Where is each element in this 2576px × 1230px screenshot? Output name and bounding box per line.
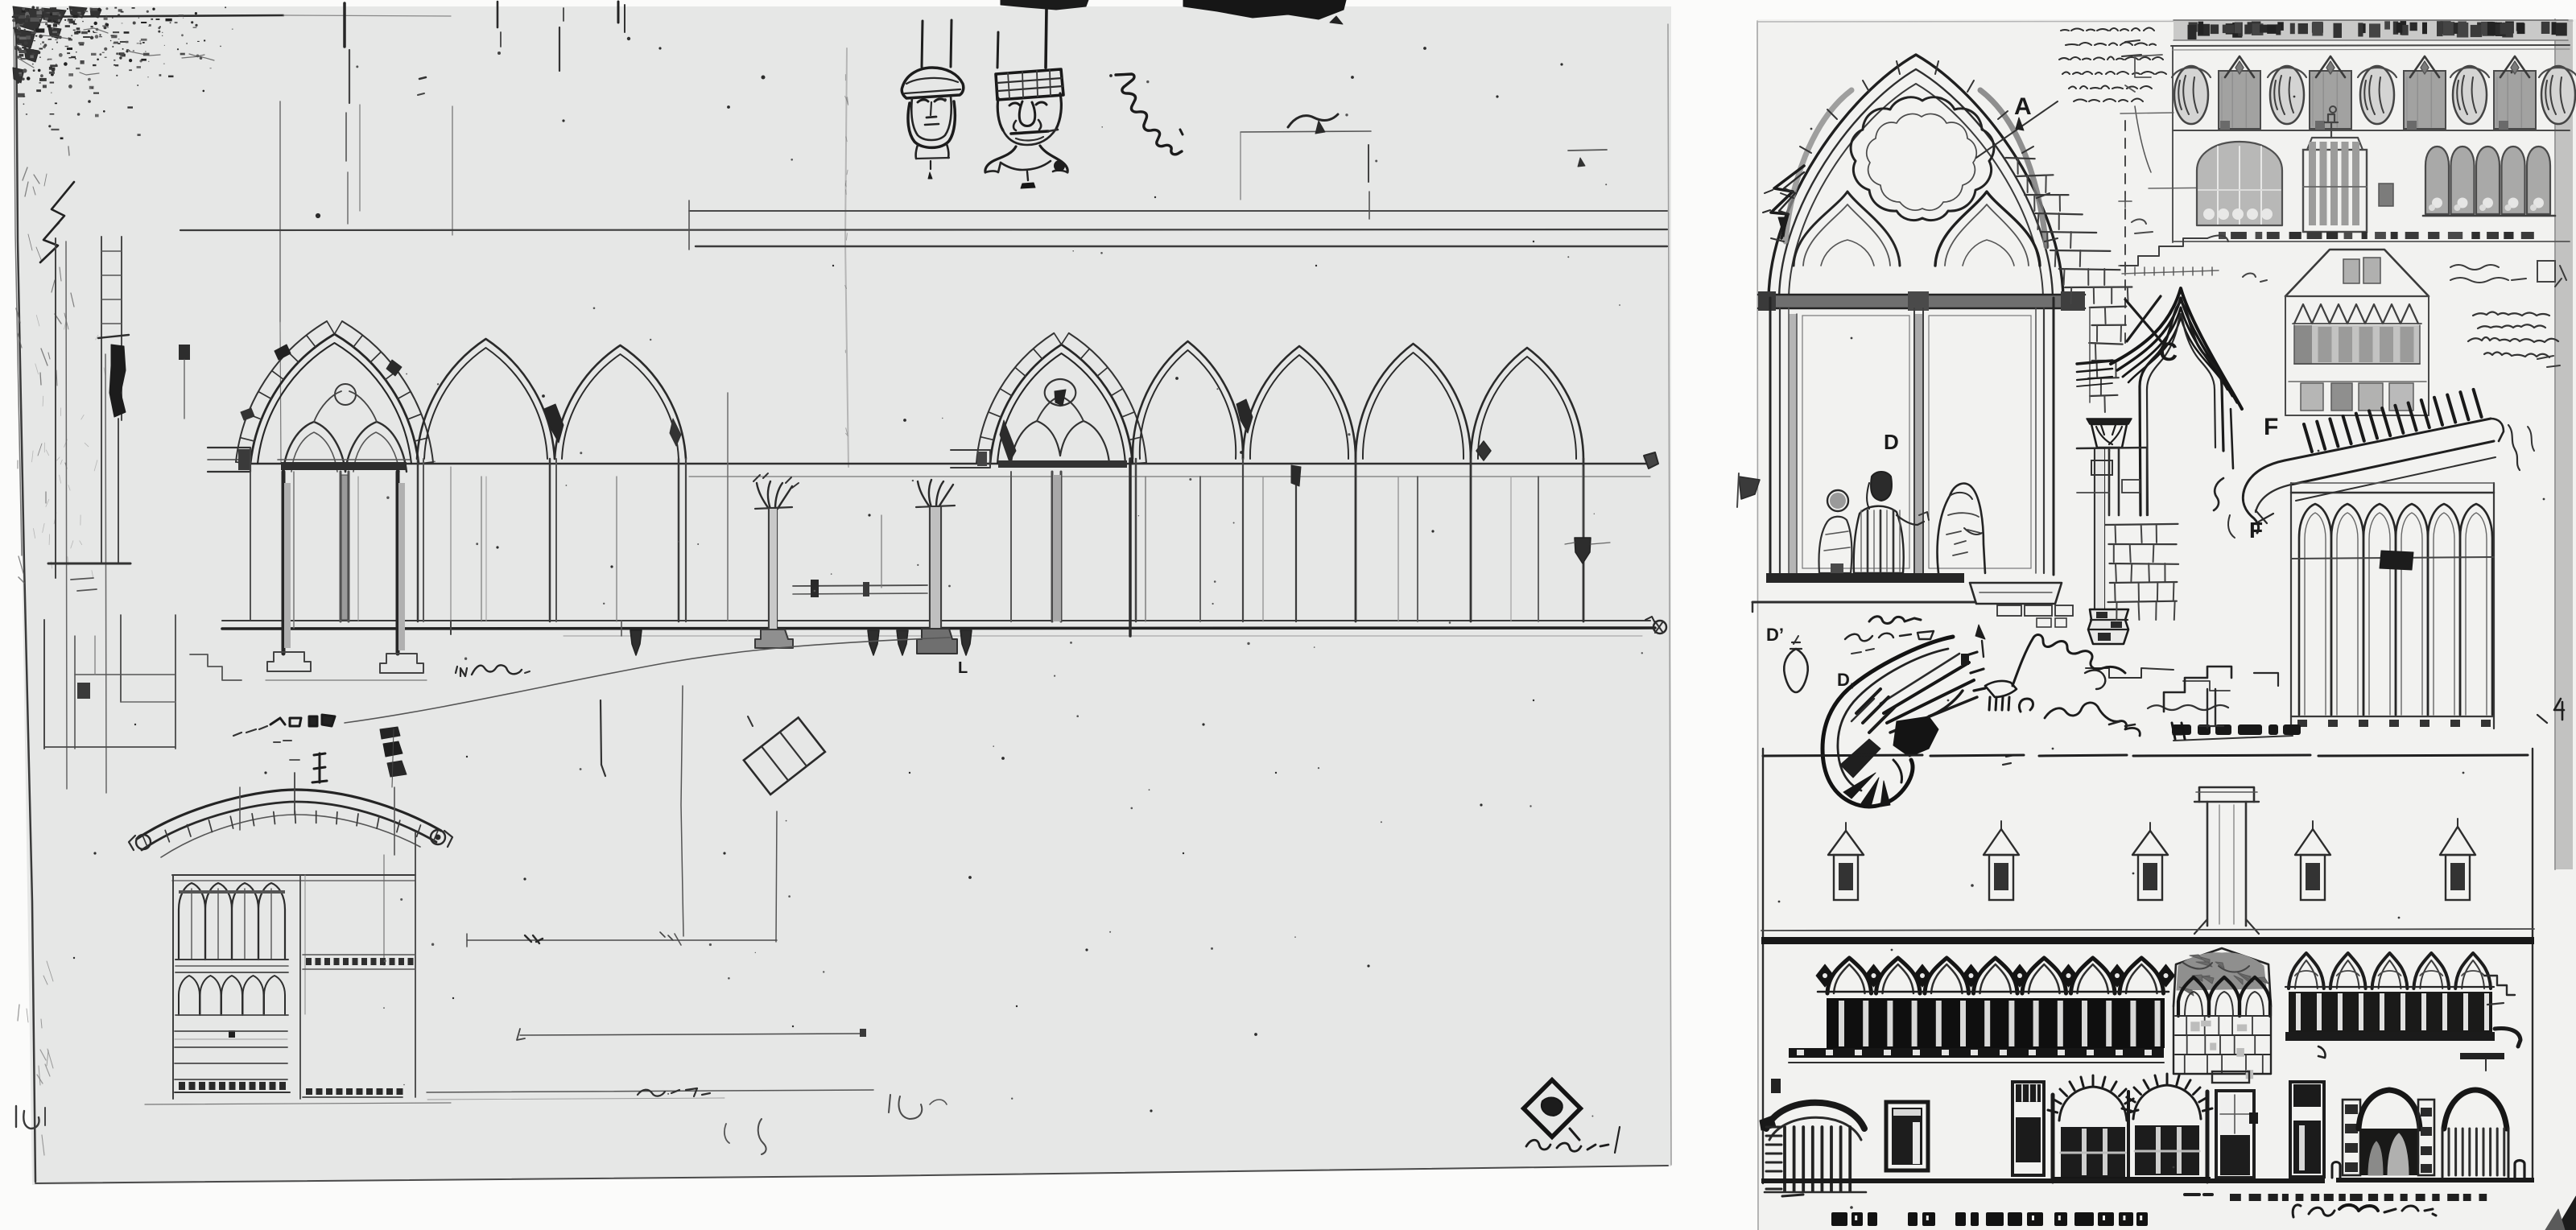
svg-text:D’: D’ — [1766, 625, 1784, 645]
svg-text:D: D — [1884, 430, 1899, 454]
svg-text:F: F — [2264, 414, 2278, 440]
svg-text:C: C — [2159, 337, 2178, 366]
svg-text:L: L — [958, 659, 968, 677]
svg-text:A: A — [2014, 93, 2032, 120]
svg-text:D,: D, — [1837, 670, 1855, 690]
